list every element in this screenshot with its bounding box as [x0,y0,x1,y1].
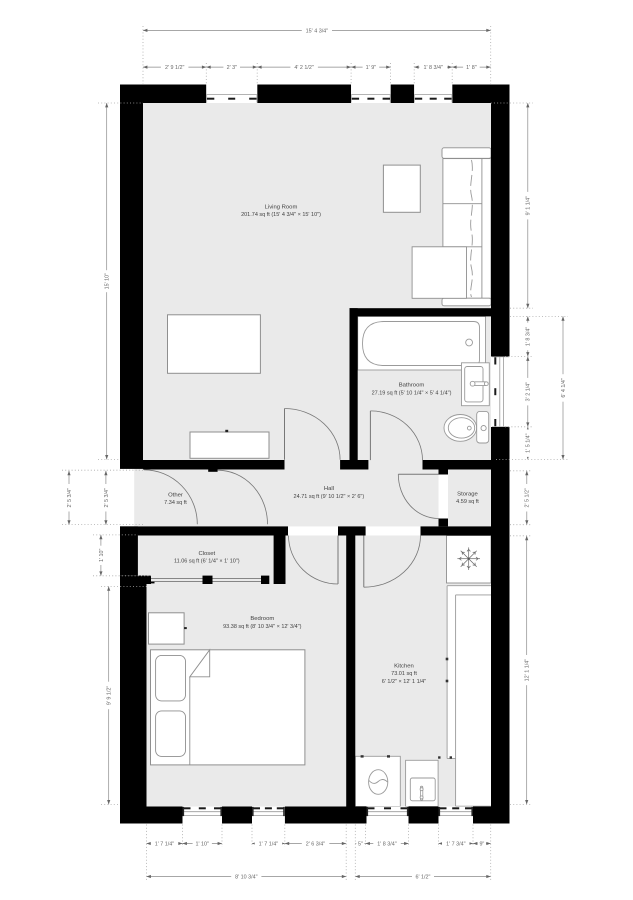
svg-text:2' 5 3/4": 2' 5 3/4" [104,488,110,508]
svg-text:6' 1/2" × 12' 1 1/4": 6' 1/2" × 12' 1 1/4" [382,679,426,685]
svg-text:1' 7 1/4": 1' 7 1/4" [259,841,279,847]
svg-text:1' 8 3/4": 1' 8 3/4" [526,327,532,347]
svg-text:73.01 sq ft: 73.01 sq ft [391,671,417,677]
svg-text:201.74 sq ft (15' 4 3/4" × 15': 201.74 sq ft (15' 4 3/4" × 15' 10") [241,212,321,218]
svg-text:24.71 sq ft (9' 10 1/2" × 2' 6: 24.71 sq ft (9' 10 1/2" × 2' 6") [294,494,365,500]
svg-text:15' 4 3/4": 15' 4 3/4" [306,28,329,34]
svg-text:Kitchen: Kitchen [394,663,414,669]
svg-text:2' 5 1/2": 2' 5 1/2" [525,488,531,508]
svg-text:1' 8 3/4": 1' 8 3/4" [423,65,443,71]
svg-text:4.59 sq ft: 4.59 sq ft [456,499,479,505]
svg-text:2' 6 3/4": 2' 6 3/4" [306,841,326,847]
svg-text:Living Room: Living Room [265,204,298,210]
svg-text:15' 10": 15' 10" [105,273,111,290]
svg-text:Bathroom: Bathroom [399,383,425,389]
svg-text:11.06 sq ft (6' 1/4" × 1' 10"): 11.06 sq ft (6' 1/4" × 1' 10") [174,559,240,565]
svg-text:2' 5 3/4": 2' 5 3/4" [67,488,73,508]
svg-text:1' 5 1/4": 1' 5 1/4" [526,433,532,453]
svg-text:Bedroom: Bedroom [250,616,274,622]
svg-text:8' 10 3/4": 8' 10 3/4" [235,874,258,880]
svg-text:2' 3": 2' 3" [227,65,238,71]
svg-text:12' 1 1/4": 12' 1 1/4" [525,659,531,682]
svg-text:1' 8 3/4": 1' 8 3/4" [377,841,397,847]
svg-text:1' 9": 1' 9" [366,65,377,71]
svg-text:1' 7 3/4": 1' 7 3/4" [446,841,466,847]
svg-text:9' 1 1/4": 9' 1 1/4" [526,196,532,216]
svg-text:9' 9 1/2": 9' 9 1/2" [107,686,113,706]
svg-text:1' 10": 1' 10" [99,548,105,562]
svg-text:Closet: Closet [198,551,215,557]
svg-text:Hall: Hall [324,486,334,492]
svg-text:9": 9" [479,841,484,847]
svg-text:6' 4 1/4": 6' 4 1/4" [561,378,567,398]
svg-text:27.19 sq ft (5' 10 1/4" × 5' 4: 27.19 sq ft (5' 10 1/4" × 5' 4 1/4") [372,390,452,396]
svg-text:93.38 sq ft (8' 10 3/4" × 12': 93.38 sq ft (8' 10 3/4" × 12' 3/4") [223,624,301,630]
svg-text:7.34 sq ft: 7.34 sq ft [164,500,187,506]
svg-text:3' 2 1/4": 3' 2 1/4" [526,382,532,402]
svg-text:2' 9 1/2": 2' 9 1/2" [165,65,185,71]
svg-text:1' 7 1/4": 1' 7 1/4" [155,841,175,847]
svg-text:1' 8": 1' 8" [466,65,477,71]
svg-text:4' 2 1/2": 4' 2 1/2" [294,65,314,71]
svg-text:Other: Other [168,493,183,499]
svg-text:5": 5" [358,841,363,847]
svg-text:6' 1/2": 6' 1/2" [416,874,431,880]
svg-text:Storage: Storage [457,492,478,498]
svg-text:1' 10": 1' 10" [195,841,209,847]
